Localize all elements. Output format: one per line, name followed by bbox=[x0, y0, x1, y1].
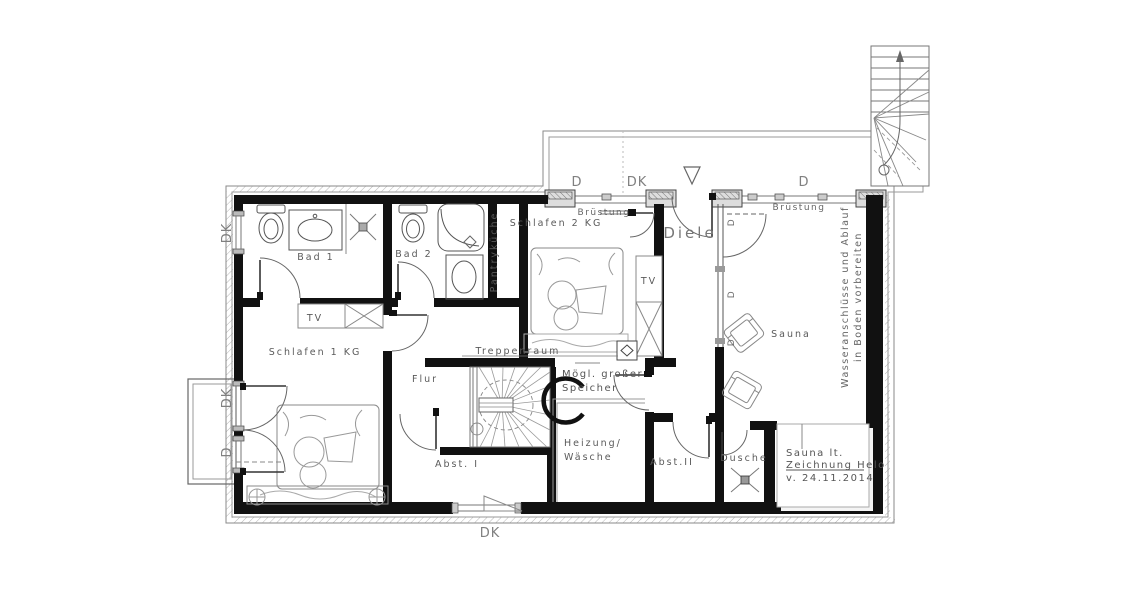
heizung-room-outline bbox=[553, 399, 645, 502]
bed bbox=[247, 405, 388, 505]
interior-spiral-stair bbox=[470, 367, 550, 447]
bad1-fixtures bbox=[257, 204, 376, 254]
room-label-diele: Diele bbox=[663, 224, 716, 242]
room-label-bad2: Bad 2 bbox=[395, 249, 432, 260]
window-label-top-d1: D bbox=[571, 175, 582, 190]
glass-panel-label-2: D bbox=[727, 290, 737, 298]
bruestung-label-right: Brüstung bbox=[773, 203, 826, 213]
bad1-door bbox=[260, 258, 300, 298]
lounge-chair-icon bbox=[721, 370, 763, 410]
room-label-sauna: Sauna bbox=[771, 329, 811, 340]
sauna-chairs bbox=[721, 312, 765, 410]
floor-plan-drawing: Bad 1 Bad 2 Pantryküche Schlafen 1 KG Sc… bbox=[0, 0, 1125, 594]
tv-label-schlafen2: TV bbox=[640, 276, 657, 287]
window-unit-1 bbox=[545, 190, 575, 207]
speicher-label-line2: Speicher bbox=[562, 383, 618, 394]
glass-panel-label-3: D bbox=[727, 338, 737, 346]
toilet-icon bbox=[257, 205, 285, 243]
room-label-schlafen2: Schlafen 2 KG bbox=[510, 218, 603, 229]
window-label-left-dk1: DK bbox=[220, 223, 235, 244]
schlafen1-door bbox=[392, 315, 428, 351]
tv-label-schlafen1: TV bbox=[306, 313, 323, 324]
lamp-icon bbox=[249, 489, 265, 505]
entry-marker-icon bbox=[684, 167, 700, 184]
dusche-door bbox=[722, 430, 747, 455]
sauna-note-line1: Sauna lt. bbox=[786, 448, 844, 459]
room-label-bad1: Bad 1 bbox=[297, 252, 334, 263]
lamp-icon bbox=[369, 489, 385, 505]
room-label-flur: Flur bbox=[412, 374, 438, 385]
balcony-french-doors bbox=[243, 386, 287, 472]
abst1-door bbox=[400, 414, 436, 450]
heizung-label-line1: Heizung/ bbox=[564, 438, 622, 449]
room-label-treppenraum: Treppenraum bbox=[475, 346, 561, 357]
floor-hatch-box bbox=[617, 341, 637, 360]
window-label-top-d2: D bbox=[798, 175, 809, 190]
heizung-label-line2: Wäsche bbox=[564, 452, 613, 463]
lounge-chair-icon bbox=[723, 312, 765, 354]
glass-panel-label-1: D bbox=[727, 218, 737, 226]
sauna-note-line2: Zeichnung Helo bbox=[786, 460, 886, 471]
room-label-schlafen1: Schlafen 1 KG bbox=[269, 347, 362, 358]
floor-drain-icon bbox=[350, 214, 376, 240]
window-label-left-dk2: DK bbox=[220, 388, 235, 409]
sauna-note-line3: v. 24.11.2014 bbox=[786, 473, 874, 484]
speicher-label-line1: Mögl. großer bbox=[562, 369, 643, 380]
room-label-dusche: Dusche bbox=[720, 453, 767, 464]
corner-shower-icon bbox=[438, 204, 484, 251]
schlafen1-furniture bbox=[247, 304, 388, 505]
window-unit-3 bbox=[712, 190, 742, 207]
water-annotation-line1: Wasseranschlüsse und Ablauf bbox=[840, 206, 851, 388]
room-label-abst1: Abst. I bbox=[435, 459, 479, 470]
tv-wardrobe bbox=[636, 256, 662, 356]
room-label-abst2: Abst.II bbox=[650, 457, 694, 468]
window-label-left-d: D bbox=[220, 446, 235, 457]
dashed-lines bbox=[236, 131, 623, 462]
bottom-window-dk bbox=[452, 496, 522, 513]
toilet-icon bbox=[399, 205, 427, 242]
water-connection-annotation: Wasseranschlüsse und Ablauf in Boden vor… bbox=[840, 206, 864, 388]
window-label-top-dk: DK bbox=[627, 175, 648, 190]
vanity-sink-icon bbox=[289, 210, 342, 250]
water-annotation-line2: in Boden vorbereiten bbox=[853, 232, 864, 362]
floor-plan-page: Bad 1 Bad 2 Pantryküche Schlafen 1 KG Sc… bbox=[0, 0, 1125, 594]
bed bbox=[524, 248, 628, 352]
window-label-bottom-dk: DK bbox=[480, 526, 501, 541]
shower-drain-icon bbox=[731, 468, 759, 492]
abst2-door bbox=[673, 422, 709, 458]
speicher-door bbox=[614, 375, 649, 410]
exterior-stair bbox=[871, 46, 929, 186]
bruestung-label-left: Brüstung bbox=[578, 208, 631, 218]
bad2-door bbox=[398, 262, 434, 298]
schlafen2-furniture bbox=[524, 248, 662, 360]
sink-icon bbox=[446, 255, 483, 299]
room-label-pantry: Pantryküche bbox=[489, 212, 500, 293]
